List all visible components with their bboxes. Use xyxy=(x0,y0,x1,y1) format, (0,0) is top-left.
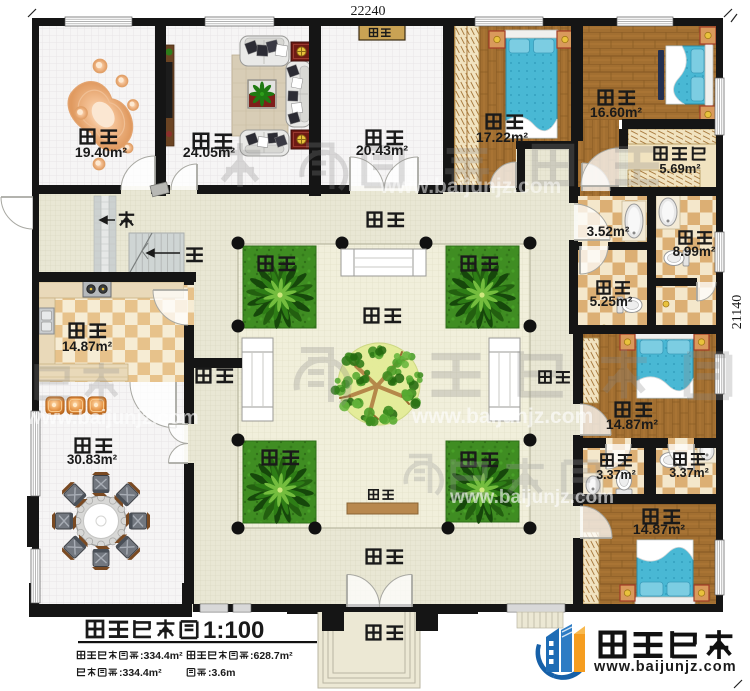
svg-text:3.52m²: 3.52m² xyxy=(587,224,630,239)
svg-text:30.83m²: 30.83m² xyxy=(67,452,118,467)
svg-text:16.60m²: 16.60m² xyxy=(590,104,642,120)
svg-text:5.69m²: 5.69m² xyxy=(659,161,701,176)
svg-text::628.7m²: :628.7m² xyxy=(250,650,293,662)
svg-text:www.baijunjz.com: www.baijunjz.com xyxy=(593,659,737,675)
svg-text:14.87m²: 14.87m² xyxy=(606,416,658,432)
svg-text:1:100: 1:100 xyxy=(203,617,264,644)
svg-text:www.baijunjz.com: www.baijunjz.com xyxy=(449,487,614,508)
svg-text:5.25m²: 5.25m² xyxy=(590,294,633,309)
svg-text:22240: 22240 xyxy=(351,4,386,19)
svg-text:www.baijunjz.com: www.baijunjz.com xyxy=(411,405,593,428)
svg-text:14.87m²: 14.87m² xyxy=(62,339,113,354)
svg-text:14.87m²: 14.87m² xyxy=(633,521,685,537)
svg-text::334.4m²: :334.4m² xyxy=(140,650,183,662)
svg-text:20.43m²: 20.43m² xyxy=(356,142,408,158)
svg-text::334.4m²: :334.4m² xyxy=(119,667,162,679)
svg-text:3.37m²: 3.37m² xyxy=(669,466,709,480)
svg-text:17.22m²: 17.22m² xyxy=(476,129,528,145)
svg-text:19.40m²: 19.40m² xyxy=(75,144,127,160)
svg-text:21140: 21140 xyxy=(730,295,745,329)
svg-text:www.baijunjz.com: www.baijunjz.com xyxy=(25,407,199,429)
svg-text:8.99m²: 8.99m² xyxy=(673,244,716,259)
svg-text:24.05m²: 24.05m² xyxy=(183,144,235,160)
svg-text:3.37m²: 3.37m² xyxy=(596,468,636,482)
svg-text::3.6m: :3.6m xyxy=(208,667,235,679)
svg-text:www.baijunjz.com: www.baijunjz.com xyxy=(379,175,561,198)
